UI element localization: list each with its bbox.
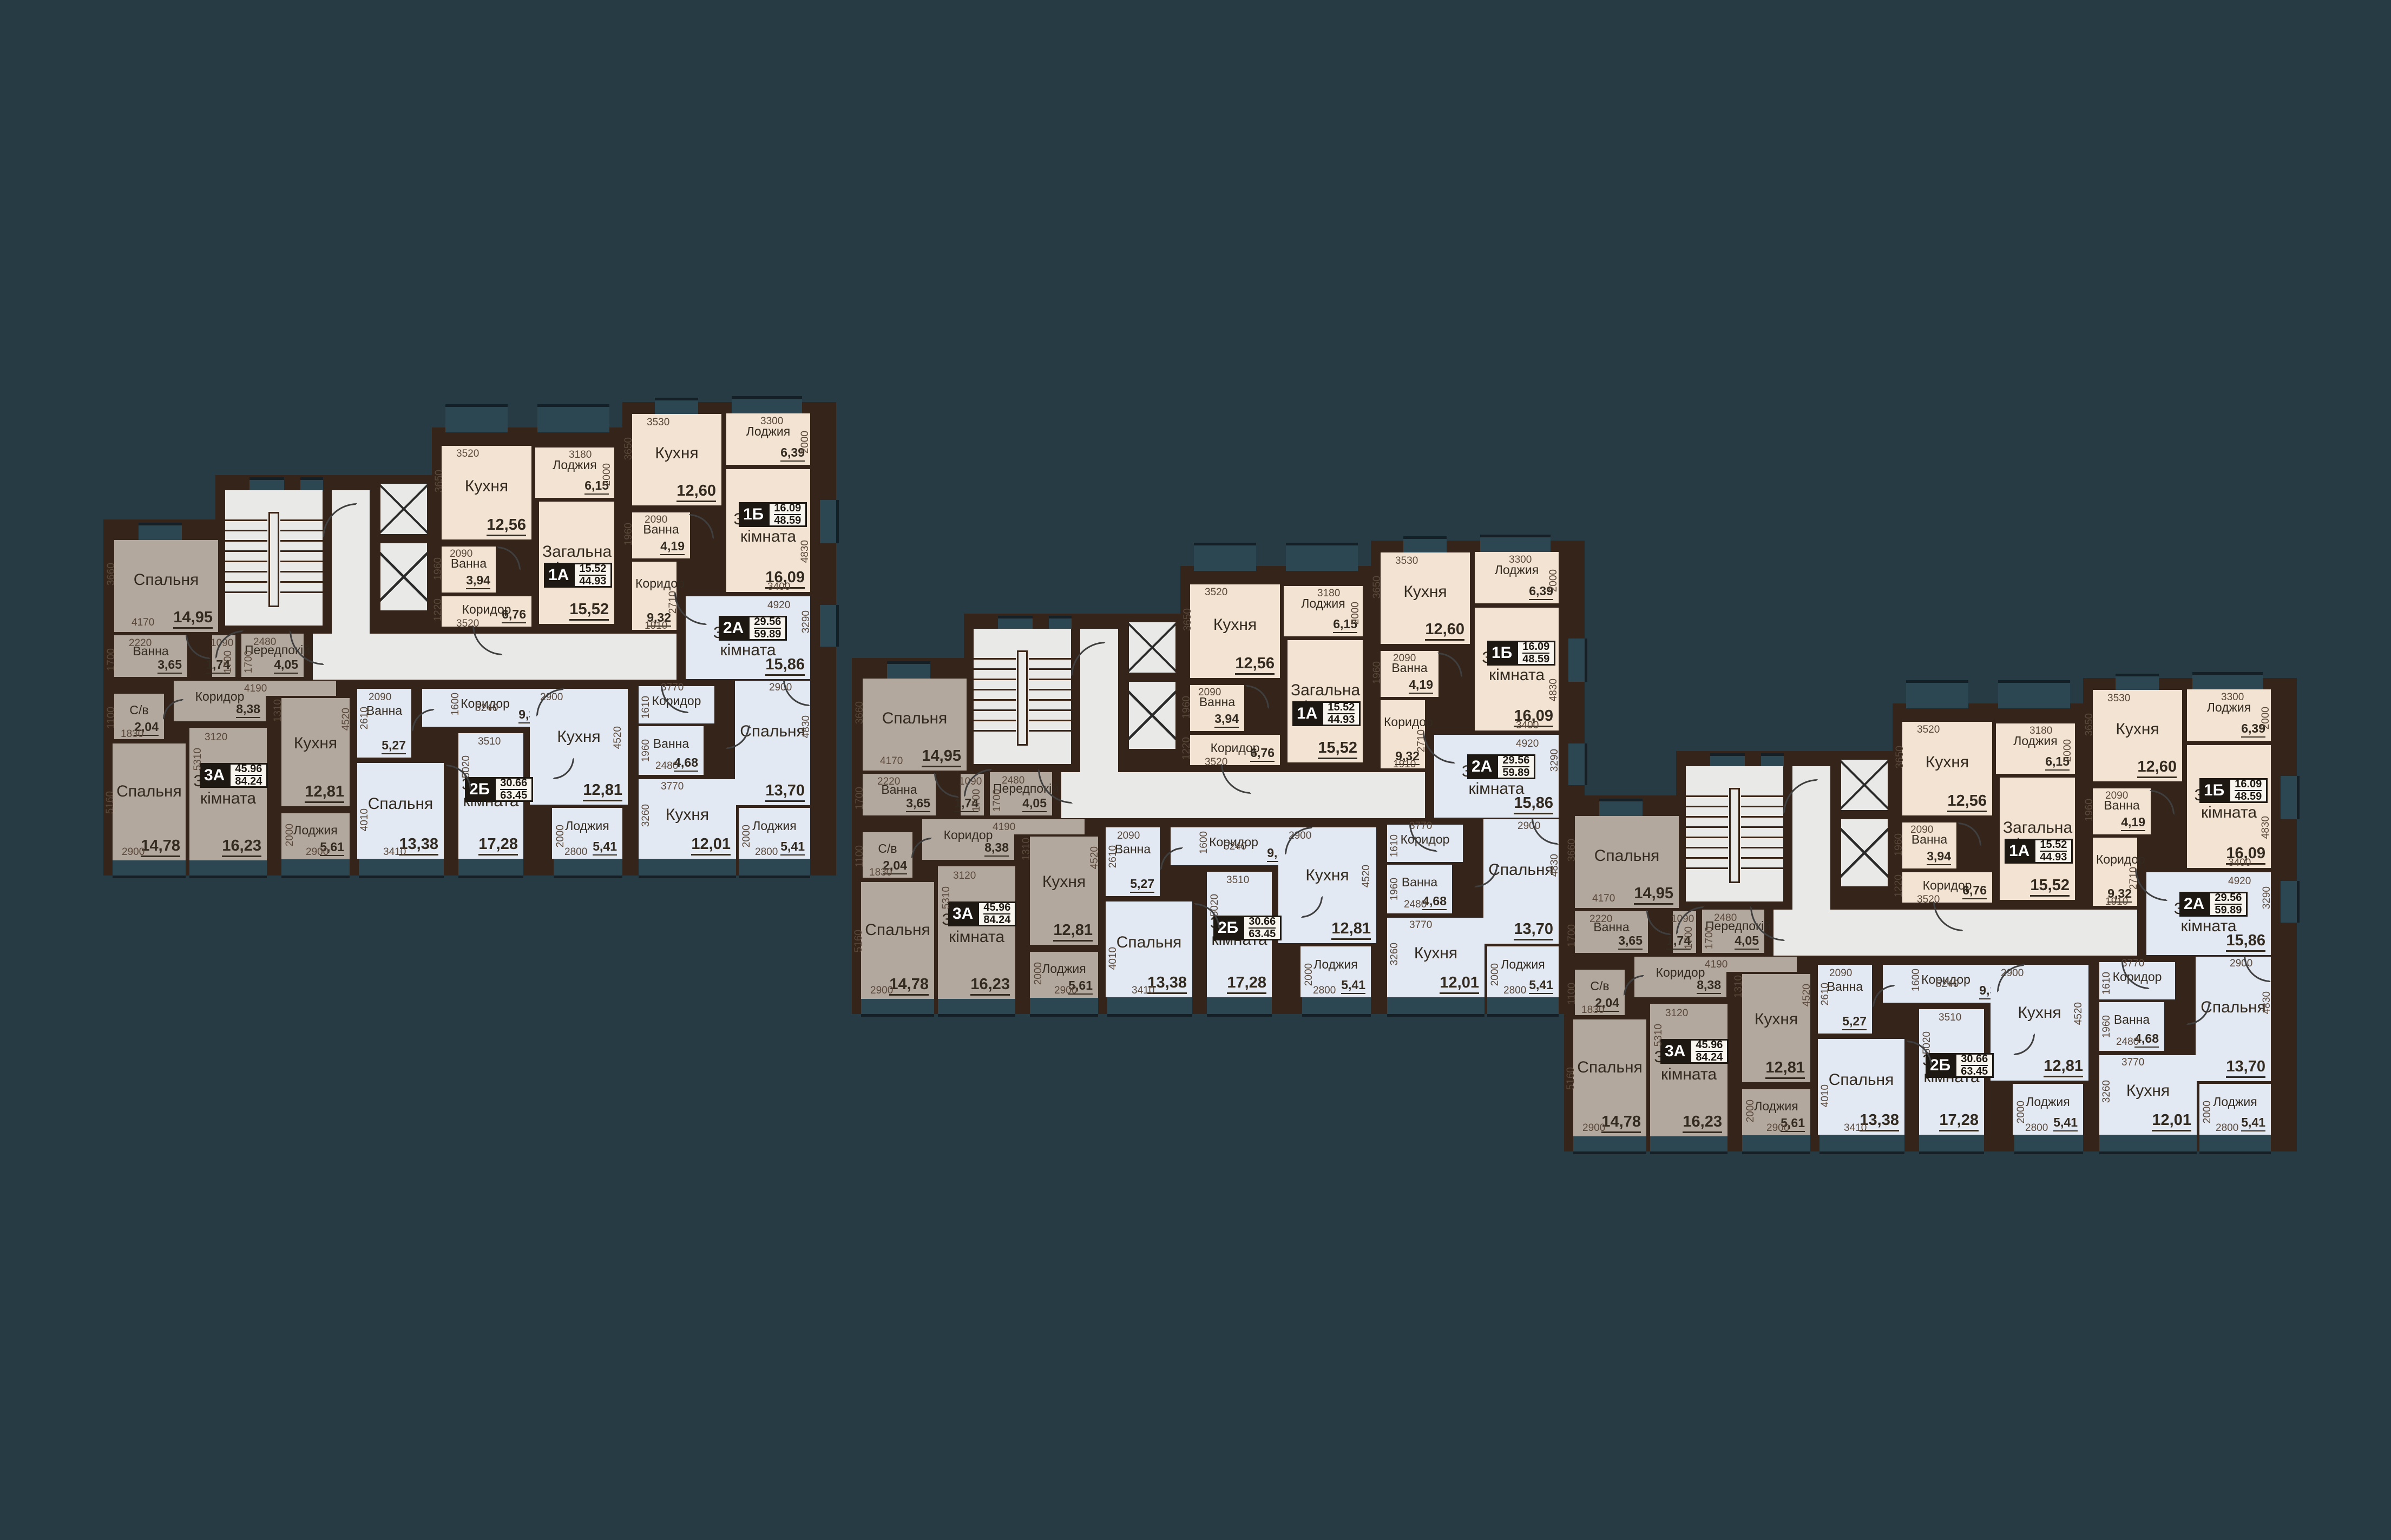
dimension-label: 1960 [2101,1015,2113,1038]
floor-plan: Спальня14,95Ванна3,651,74Передпокій4,05С… [0,0,2391,1540]
dimension-label: 1610 [2101,972,2113,995]
balcony [554,856,622,878]
apartment-areas: 15.5244.93 [1322,701,1361,726]
dimension-label: 2480 [253,636,276,648]
room-bedroom: Спальня14,78 [1573,1019,1646,1136]
dimension-label: 4830 [1548,679,1560,701]
dimension-label: 4830 [2261,991,2273,1014]
room-label: Спальня [1575,847,1679,865]
apartment-badge-2A: 2A29.5659.89 [1467,754,1535,779]
dimension-label: 3410 [383,846,406,858]
dimension-label: 3300 [760,416,783,427]
room-area-value: 12,81 [1053,922,1093,942]
apartment-code: 2A [2179,892,2209,917]
apartment-code: 3A [200,763,229,788]
dimension-label: 4830 [2260,816,2272,839]
room-area-value: 4,05 [274,657,298,674]
room-area-value: 12,60 [1425,621,1464,641]
balcony [1049,616,1072,629]
room-bedroom: Спальня14,78 [861,882,934,999]
section-2: Спальня14,95Ванна3,651,74Передпокій4,05С… [848,523,1585,1026]
dimension-label: 2800 [1313,985,1336,997]
room-area-value: 5,41 [593,839,617,855]
dimension-label: 3650 [1894,746,1906,768]
room-label: С/в [1575,979,1625,992]
apartment-badge-1A: 1A15.5244.93 [544,563,612,588]
total-area-value: 48.59 [774,515,801,527]
room-label: Кухня [1190,616,1280,634]
elevator-shaft [377,540,430,614]
balcony [1030,995,1098,1017]
balcony [2199,1132,2271,1154]
apartment-code: 1A [544,563,573,588]
dimension-label: 3180 [2029,725,2052,737]
dimension-label: 5160 [104,791,116,814]
apartment-areas: 15.5244.93 [2034,839,2073,864]
living-area-value: 29.56 [1502,755,1529,767]
dimension-label: 2220 [129,637,152,649]
dimension-label: 1910 [1393,759,1416,771]
dimension-label: 3120 [953,870,976,882]
dimension-label: 5310 [192,748,204,771]
dimension-label: 4920 [2228,876,2251,887]
dimension-label: 4520 [1801,984,1813,1006]
balcony [300,477,323,491]
balcony [537,404,609,432]
balcony [739,856,810,878]
dimension-label: 2900 [122,846,144,858]
dimension-label: 3660 [106,563,117,585]
room-label: Коридор [1381,715,1425,728]
room-bedroom: Спальня14,78 [113,743,186,860]
dimension-label: 3300 [2221,692,2244,703]
dimension-label: 1310 [272,699,284,722]
room-area-value: 15,86 [1514,794,1553,814]
room-area-value: 14,95 [922,747,961,767]
dimension-label: 3650 [433,470,445,492]
dimension-label: 3180 [1317,588,1340,600]
total-area-value: 84.24 [235,776,262,787]
room-area-value: 4,05 [1022,796,1047,812]
dimension-label: 3400 [2228,857,2251,869]
dimension-label: 1700 [1704,926,1716,949]
room-area-value: 13,70 [765,782,805,802]
dimension-label: 1830 [1581,1004,1604,1016]
dimension-label: 3290 [800,610,812,633]
apartment-code: 1Б [1487,641,1516,666]
room-area-value: 4,19 [660,539,685,555]
balcony [359,856,444,878]
apartment-areas: 15.5244.93 [573,563,612,588]
living-area-value: 30.66 [500,778,527,790]
room-corridor-arm [266,681,336,696]
dimension-label: 4010 [359,808,371,831]
room-kitchen: Кухня12,81 [1030,837,1098,945]
apartment-areas: 29.5659.89 [2209,892,2248,917]
dimension-label: 5240 [1224,841,1246,853]
room-kitchen: Кухня12,56 [1190,584,1280,678]
room-label: Кухня [1902,754,1992,771]
apartment-code: 3A [1660,1039,1690,1064]
dimension-label: 3650 [2084,713,2096,736]
dimension-label: 3260 [1389,943,1401,965]
dimension-label: 3770 [2121,1057,2144,1069]
dimension-label: 2090 [2105,790,2128,802]
dimension-label: 1830 [869,867,892,879]
apartment-code: 1A [1292,701,1322,726]
room-area-value: 5,41 [2241,1115,2265,1131]
dimension-label: 2000 [1489,963,1501,986]
stair-flight [1029,658,1071,734]
room-area-value: 12,01 [691,835,731,855]
room-kitchen: Кухня12,81 [281,698,350,806]
balcony [1742,1132,1810,1154]
room-area-value: 8,38 [1697,978,1721,994]
section-3: Спальня14,95Ванна3,651,74Передпокій4,05С… [1560,660,2297,1163]
dimension-label: 3770 [1409,919,1432,931]
dimension-label: 1610 [1389,834,1401,857]
dimension-label: 1910 [2105,896,2128,908]
room-area-value: 17,28 [1227,974,1266,994]
balcony [1487,995,1559,1017]
room-area-value: 3,65 [1618,933,1643,950]
dimension-label: 3400 [767,581,790,593]
balcony [820,500,839,543]
dimension-label: 1310 [1021,838,1033,860]
total-area-value: 44.93 [2040,852,2067,863]
dimension-label: 1100 [106,707,117,729]
room-area-value: 15,86 [2226,932,2265,952]
dimension-label: 3120 [205,732,227,743]
balcony [1919,1132,1984,1154]
dimension-label: 1910 [645,620,667,632]
balcony [1107,995,1192,1017]
stairwell [1686,766,1783,901]
dimension-label: 2000 [1548,569,1560,592]
dimension-label: 2480 [1404,899,1427,911]
dimension-label: 3530 [647,417,669,429]
room-area-value: 16,23 [1683,1113,1722,1133]
room-corridor: Коридор6,76 [1902,872,1992,903]
dimension-label: 2090 [1117,830,1140,842]
dimension-label: 1100 [1566,983,1578,1005]
dimension-label: 2000 [284,824,296,846]
apartment-areas: 16.0948.59 [1516,641,1555,666]
room-label: Кухня [2099,1082,2197,1100]
room-kitchen: Кухня12,56 [442,446,531,539]
dimension-label: 1610 [640,696,652,719]
dimension-label: 3660 [1566,839,1578,861]
dimension-label: 2000 [1303,963,1315,986]
dimension-label: 2220 [877,776,900,788]
total-area-value: 63.45 [1961,1066,1988,1077]
stair-stringer [268,512,279,607]
dimension-label: 3410 [1132,985,1154,997]
dimension-label: 2900 [870,985,893,997]
dimension-label: 2610 [1107,845,1119,868]
dimension-label: 2900 [306,846,329,858]
room-area-value: 12,01 [1440,974,1479,994]
balcony [1387,995,1484,1017]
dimension-label: 3520 [1205,587,1227,598]
room-area-value: 3,65 [906,796,930,812]
room-area-value: 8,38 [236,702,260,718]
dimension-label: 2610 [359,707,371,729]
balcony [458,856,523,878]
room-area-value: 16,23 [222,837,261,857]
balcony [2014,1132,2083,1154]
balcony [2281,776,2300,819]
room-corridor: Коридор6,76 [442,596,531,627]
dimension-label: 2000 [799,431,811,453]
room-label: Кухня [2093,721,2182,738]
dimension-label: 1700 [1566,924,1578,947]
dimension-label: 2480 [655,760,678,772]
dimension-label: 4920 [767,600,790,611]
room-area-value: 6,76 [502,607,526,623]
room-kitchen: Кухня12,01 [2099,1055,2197,1135]
dimension-label: 1220 [1181,737,1193,760]
dimension-label: 4520 [1361,865,1372,887]
dimension-label: 4170 [880,755,903,767]
dimension-label: 2000 [1745,1100,1757,1122]
balcony [139,523,182,542]
balcony [1207,995,1272,1017]
total-area-value: 84.24 [983,914,1010,926]
dimension-label: 2090 [1829,968,1852,979]
dimension-label: 3510 [1226,874,1249,886]
living-area-value: 45.96 [235,764,262,776]
stair-flight [974,658,1016,734]
total-area-value: 59.89 [2215,905,2242,916]
room-label: Спальня [861,922,934,939]
room-area-value: 14,78 [1601,1113,1641,1133]
room-label: Кухня [632,445,721,462]
dimension-label: 4170 [132,617,154,629]
dimension-label: 1960 [1181,696,1193,719]
room-area-value: 14,78 [141,837,180,857]
stairwell [225,490,323,626]
dimension-label: 3520 [1917,724,1940,736]
room-area-value: 5,27 [1130,877,1154,893]
balcony [281,856,350,878]
dimension-label: 1600 [1910,969,1922,991]
living-area-value: 16.09 [1522,641,1549,654]
dimension-label: 4190 [244,683,267,695]
room-area-value: 17,28 [1939,1111,1979,1131]
room-label: Кухня [1742,1011,1810,1028]
stair-flight [1741,795,1783,871]
stair-stringer [1017,650,1028,746]
dimension-label: 2480 [1714,912,1737,924]
balcony [820,605,839,647]
balcony [249,477,284,491]
dimension-label: 3120 [1665,1008,1688,1019]
room-area-value: 12,01 [2152,1111,2191,1131]
room-corridor: Коридор6,76 [1190,735,1280,765]
room-corridor-arm [1726,957,1797,972]
dimension-label: 2480 [1002,775,1024,787]
balcony [1302,995,1371,1017]
dimension-label: 2000 [1033,962,1045,985]
room-area-value: 6,76 [1250,746,1275,762]
dimension-label: 3260 [2101,1080,2113,1103]
dimension-label: 2800 [2216,1122,2238,1134]
dimension-label: 5240 [475,702,498,714]
room-area-value: 14,78 [889,976,929,996]
apartment-badge-1Б: 1Б16.0948.59 [1487,641,1555,666]
dimension-label: 2000 [601,463,613,486]
room-label: Коридор [2093,853,2137,866]
apartment-areas: 16.0948.59 [2229,778,2268,803]
room-area-value: 17,28 [478,835,518,855]
dimension-label: 5240 [1936,978,1959,990]
elevator-shaft [1838,756,1891,813]
room-corridor-arm [1014,819,1085,834]
dimension-label: 3660 [854,701,866,724]
elevator-shaft [377,481,430,537]
room-living-room: Загальна кімната16,09 [1475,608,1559,730]
apartment-badge-1Б: 1Б16.0948.59 [2199,778,2268,803]
elevator-shaft [1838,816,1891,890]
dimension-label: 2090 [1393,653,1416,664]
apartment-areas: 30.6663.45 [494,777,533,802]
apartment-code: 2A [1467,754,1496,779]
room-label: Кухня [281,735,350,752]
total-area-value: 44.93 [579,576,606,587]
room-living-room: Загальна кімната16,09 [2187,745,2271,868]
balcony [1906,680,1968,708]
dimension-label: 1700 [106,648,117,671]
room-kitchen: Кухня12,56 [1902,722,1992,815]
stair-flight [1686,795,1728,871]
room-area-value: 3,65 [157,657,182,674]
apartment-code: 1Б [2199,778,2229,803]
apartment-badge-1Б: 1Б16.0948.59 [739,502,807,527]
room-area-value: 12,56 [1235,655,1275,675]
room-area-value: 12,56 [1947,792,1987,812]
room-area-value: 3,94 [1927,849,1951,865]
balcony [1599,799,1643,818]
room-bedroom: Спальня14,95 [863,679,967,771]
room-area-value: 12,81 [1331,920,1371,940]
living-area-value: 45.96 [1696,1039,1723,1052]
room-bedroom: Спальня14,95 [1575,816,1679,908]
apartment-areas: 29.5659.89 [1496,754,1535,779]
elevator-shaft [1126,619,1179,676]
dimension-label: 2090 [645,514,667,526]
total-area-value: 63.45 [1249,929,1276,940]
apartment-areas: 30.6663.45 [1243,916,1282,940]
dimension-label: 2480 [2116,1036,2139,1048]
total-area-value: 84.24 [1696,1052,1723,1063]
room-area-value: 12,81 [1765,1059,1805,1079]
dimension-label: 4190 [993,821,1015,833]
living-area-value: 45.96 [983,902,1010,914]
apartment-code: 2A [719,616,748,641]
dimension-label: 3260 [640,804,652,827]
room-area-value: 12,60 [676,482,716,502]
balcony [998,616,1033,629]
dimension-label: 4830 [799,540,811,563]
room-living-room: Загальна кімната16,09 [726,469,810,592]
dimension-label: 2090 [450,548,472,560]
room-area-value: 12,81 [305,783,344,803]
apartment-areas: 45.9684.24 [977,901,1016,926]
dimension-label: 3530 [1395,555,1418,567]
balcony [2099,1132,2197,1154]
room-area-value: 12,56 [487,516,526,536]
room-area-value: 5,27 [382,738,406,754]
living-area-value: 15.52 [579,563,606,576]
balcony [887,661,930,680]
apartment-areas: 45.9684.24 [1690,1039,1729,1064]
dimension-label: 2220 [1589,913,1612,925]
dimension-label: 4520 [340,708,352,730]
room-area-value: 4,19 [2121,815,2145,831]
room-area-value: 15,52 [2030,877,2070,897]
apartment-badge-2A: 2A29.5659.89 [719,616,787,641]
dimension-label: 3530 [2107,693,2130,705]
room-label: Кухня [1030,873,1098,891]
apartment-badge-1A: 1A15.5244.93 [2005,839,2073,864]
dimension-label: 4520 [2073,1002,2085,1025]
dimension-label: 1700 [243,650,255,673]
balcony [1761,753,1784,767]
room-label: Спальня [863,710,967,727]
total-area-value: 59.89 [1502,767,1529,779]
dimension-label: 3650 [1371,576,1383,598]
dimension-label: 2090 [1910,824,1933,836]
dimension-label: 2900 [1582,1122,1605,1134]
room-area-value: 8,38 [984,840,1009,857]
dimension-label: 1960 [1389,878,1401,900]
apartment-badge-2Б: 2Б30.6663.45 [1926,1053,1994,1078]
room-area-value: 16,23 [970,976,1010,996]
room-kitchen: Кухня12,01 [639,779,736,859]
room-label: Кухня [442,478,531,495]
apartment-areas: 29.5659.89 [748,616,787,641]
room-label: С/в [863,842,912,855]
balcony [1710,753,1745,767]
balcony [639,856,736,878]
room-bedroom: Спальня14,95 [114,540,218,632]
room-kitchen: Кухня12,60 [2093,690,2182,781]
stair-flight [225,519,267,595]
dimension-label: 1600 [1198,831,1210,854]
dimension-label: 1700 [991,789,1003,812]
dimension-label: 2000 [2202,1101,2213,1123]
living-area-value: 15.52 [2040,839,2067,852]
dimension-label: 5160 [1565,1067,1577,1090]
room-area-value: 4,05 [1735,933,1759,950]
dimension-label: 2000 [2015,1101,2027,1123]
apartment-badge-3A: 3A45.9684.24 [1660,1039,1729,1064]
room-area-value: 5,27 [1842,1014,1867,1030]
room-area-value: 5,41 [1529,978,1553,994]
living-area-value: 15.52 [1328,702,1355,714]
room-label: Спальня [113,783,186,800]
dimension-label: 2000 [741,825,753,847]
living-area-value: 30.66 [1961,1054,1988,1066]
dimension-label: 2000 [2260,707,2272,729]
room-area-value: 12,81 [2044,1057,2083,1077]
dimension-label: 1960 [432,557,444,580]
dimension-label: 2000 [2062,739,2074,762]
dimension-label: 1960 [640,739,652,762]
apartment-areas: 45.9684.24 [229,763,268,788]
dimension-label: 2800 [755,846,778,858]
